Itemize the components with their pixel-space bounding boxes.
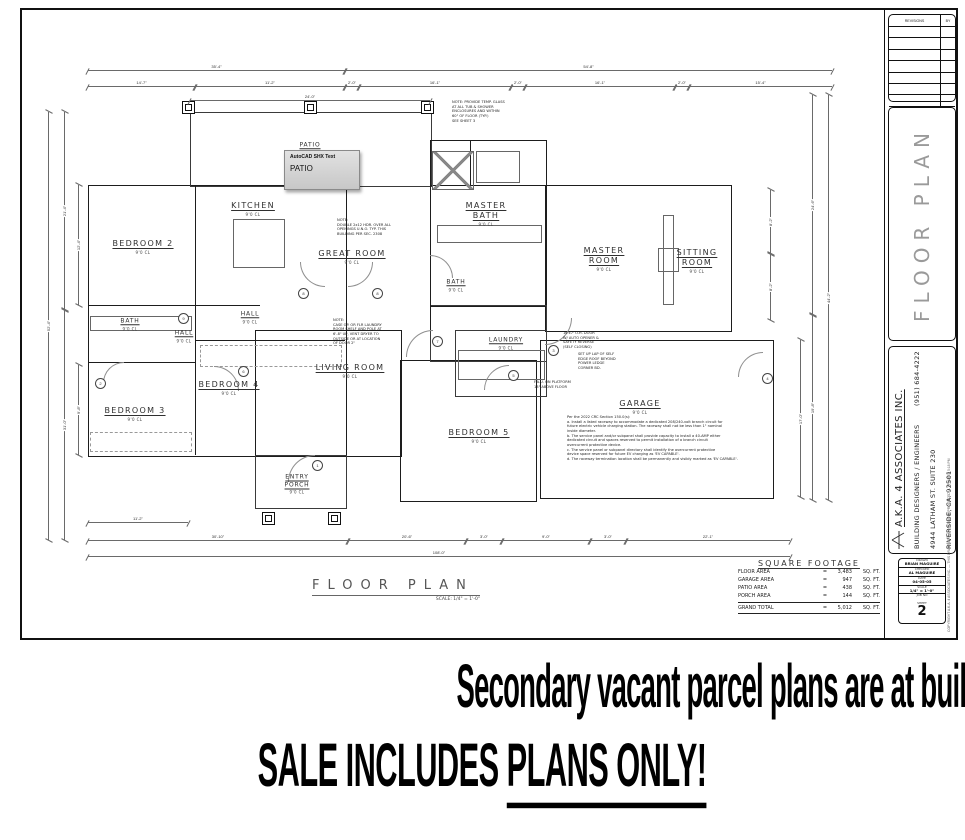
tooltip-text: PATIO bbox=[290, 164, 354, 173]
room-label: SITTING ROOM9'0 CL bbox=[677, 248, 718, 274]
room-label: HALL9'0 CL bbox=[175, 329, 194, 343]
dimension-label: 108'-0" bbox=[432, 551, 446, 555]
door-swing-arc bbox=[348, 262, 373, 287]
dimension-label: 11'-2" bbox=[264, 81, 276, 85]
dimension-label: 22'-1" bbox=[702, 535, 714, 539]
square-footage-row: GARAGE AREA=947SQ. FT. bbox=[738, 576, 880, 584]
dimension: 108'-0" bbox=[88, 556, 790, 557]
room-label: LIVING ROOM9'0 CL bbox=[316, 363, 385, 379]
dimension-label: 8'-2" bbox=[769, 217, 773, 227]
drawing-info-block: DRAWNBRIAN MAGUIRECHECKEDAL MAGUIREDATE0… bbox=[898, 558, 946, 624]
tooltip-title: AutoCAD SHX Text bbox=[290, 154, 354, 160]
dimension: 22'-1" bbox=[626, 540, 790, 541]
square-footage-total: GRAND TOTAL=5,012SQ. FT. bbox=[738, 602, 880, 614]
revision-row bbox=[889, 61, 955, 72]
dimension: 24'-0" bbox=[190, 100, 430, 101]
plan-note: NOTE:CASE OP. OR FLR LAUNDRYROOM SHELF A… bbox=[333, 318, 382, 346]
dimension: 44'-2" bbox=[828, 95, 829, 500]
room-label: HALL9'0 CL bbox=[241, 310, 260, 324]
dimension-label: 24'-6" bbox=[811, 199, 815, 211]
dimension-label: 3'-0" bbox=[479, 535, 489, 539]
revisions-rows bbox=[889, 27, 955, 107]
room-label: BEDROOM 39'0 CL bbox=[104, 406, 165, 422]
dimension-label: 30'-10" bbox=[211, 535, 225, 539]
plan-title: FLOOR PLAN SCALE: 1/4" = 1'-0" bbox=[312, 578, 480, 602]
sheet-number-section: SHEET 2 bbox=[899, 598, 945, 623]
dimension-label: 24'-0" bbox=[304, 95, 316, 99]
wall-line bbox=[195, 185, 196, 305]
caption-line-1: Secondary vacant parcel plans are at bui… bbox=[457, 650, 965, 722]
dimension-label: 16'-1" bbox=[594, 81, 606, 85]
dimension-label: 54'-8" bbox=[582, 65, 594, 69]
dimension-label: 52'-4" bbox=[47, 320, 51, 332]
room-label: ENTRY PORCH9'0 CL bbox=[285, 474, 310, 495]
dimension: 35'-4" bbox=[88, 70, 345, 71]
page: AutoCAD SHX Text PATIO FLOOR PLAN SCALE:… bbox=[0, 0, 965, 840]
plan-note: NOTE: PROVIDE TEMP. GLASSAT ALL TUB & SH… bbox=[452, 100, 505, 123]
autocad-shx-tooltip: AutoCAD SHX Text PATIO bbox=[284, 150, 360, 190]
plan-note: Per the 2022 CRC Section 150.0(s):a. Ins… bbox=[567, 415, 738, 462]
caption-line-2-underlined: PLANS ONLY! bbox=[507, 730, 707, 808]
fixture bbox=[90, 432, 192, 452]
square-footage-row: PATIO AREA=438SQ. FT. bbox=[738, 584, 880, 592]
square-footage-row: FLOOR AREA=3,483SQ. FT. bbox=[738, 568, 880, 576]
dimension-label: 44'-2" bbox=[827, 291, 831, 303]
dimension: 20'-6" bbox=[348, 540, 466, 541]
wall-line bbox=[88, 362, 195, 363]
dimension-label: 19'-8" bbox=[811, 401, 815, 413]
patio-post bbox=[262, 512, 275, 525]
door-tag: 7 bbox=[432, 336, 443, 347]
dimension: 9'-8" bbox=[78, 365, 79, 455]
dimension-label: 9'-8" bbox=[77, 405, 81, 415]
dimension: 52'-4" bbox=[48, 112, 49, 540]
room-label: BATH9'0 CL bbox=[120, 317, 139, 331]
revision-row bbox=[889, 50, 955, 61]
square-footage-rows: FLOOR AREA=3,483SQ. FT.GARAGE AREA=947SQ… bbox=[738, 568, 880, 600]
sheet-title-panel: FLOOR PLAN bbox=[888, 107, 956, 341]
room-label: GARAGE9'0 CL bbox=[619, 399, 660, 415]
dimension: 8'-2" bbox=[770, 254, 771, 320]
dimension: 17'-0" bbox=[800, 340, 801, 497]
dimension-label: 16'-1" bbox=[429, 81, 441, 85]
compass-logo bbox=[891, 531, 905, 549]
patio-post bbox=[304, 101, 317, 114]
door-tag: 9 bbox=[178, 313, 189, 324]
dimension-label: 21'-4" bbox=[63, 205, 67, 217]
room-label: GREAT ROOM9'0 CL bbox=[318, 249, 385, 265]
dimension-label: 9'-0" bbox=[541, 535, 551, 539]
door-tag: 1 bbox=[312, 460, 323, 471]
caption-banner: Secondary vacant parcel plans are at bui… bbox=[0, 650, 965, 794]
dimension: 24'-6" bbox=[812, 95, 813, 315]
revisions-table: REVISIONS BY bbox=[888, 14, 956, 102]
dimension-label: 31'-0" bbox=[63, 419, 67, 431]
revision-row bbox=[889, 27, 955, 38]
fixture bbox=[476, 151, 520, 183]
dimension: 11'-2" bbox=[195, 86, 345, 87]
company-phone: (951) 684-4222 bbox=[913, 351, 921, 406]
dimension-label: 20'-6" bbox=[401, 535, 413, 539]
door-tag: 8 bbox=[372, 288, 383, 299]
dimension-label: 2'-0" bbox=[677, 81, 687, 85]
room-label: LAUNDRY9'0 CL bbox=[489, 336, 523, 350]
dimension-label: 35'-4" bbox=[210, 65, 222, 69]
room-label: BEDROOM 59'0 CL bbox=[448, 428, 509, 444]
dimension-label: 17'-0" bbox=[799, 412, 803, 424]
dimension: 16'-1" bbox=[525, 86, 675, 87]
door-tag: 3 bbox=[548, 345, 559, 356]
dimension-label: 2'-0" bbox=[513, 81, 523, 85]
dimension: 12'-4" bbox=[78, 185, 79, 305]
copyright-microtext: COPYRIGHT A.K.A. 4 ASSOCIATES INC. — THI… bbox=[947, 458, 951, 632]
dimension-label: 3'-0" bbox=[603, 535, 613, 539]
revision-row bbox=[889, 84, 955, 95]
door-tag: 6 bbox=[238, 366, 249, 377]
sheet-number: 2 bbox=[917, 605, 926, 618]
room-label: BEDROOM 49'0 CL bbox=[198, 380, 259, 396]
caption-line-2-prefix: SALE INCLUDES bbox=[258, 730, 507, 799]
company-line2: BUILDING DESIGNERS / ENGINEERS bbox=[913, 425, 921, 549]
dimension: 19'-8" bbox=[812, 315, 813, 500]
dimension-label: 15'-4" bbox=[754, 81, 766, 85]
door-tag: 4 bbox=[762, 373, 773, 384]
plan-note: F.A.U. ON PLATFORM18" ABOVE FLOOR bbox=[534, 380, 571, 389]
square-footage-table: SQUARE FOOTAGE FLOOR AREA=3,483SQ. FT.GA… bbox=[738, 559, 880, 614]
wall-line bbox=[195, 340, 345, 341]
revision-row bbox=[889, 95, 955, 106]
door-tag: 8 bbox=[298, 288, 309, 299]
wall-line bbox=[88, 305, 260, 306]
room-label: PATIO bbox=[299, 141, 320, 149]
fixture bbox=[437, 225, 542, 243]
fixture bbox=[233, 219, 285, 268]
plan-note: NOTE:DOUBLE 2x12 HDR. OVER ALLOPENINGS U… bbox=[337, 218, 391, 237]
dimension: 30'-10" bbox=[88, 540, 348, 541]
room-label: MASTER BATH9'0 CL bbox=[466, 201, 507, 227]
revisions-header: REVISIONS bbox=[889, 19, 940, 23]
door-tag: 5 bbox=[508, 370, 519, 381]
sheet-title-vertical: FLOOR PLAN bbox=[910, 126, 934, 322]
dimension: 9'-0" bbox=[502, 540, 590, 541]
dimension: 8'-2" bbox=[770, 190, 771, 254]
plan-note: SET UP LAP OF SELFEDGE ROOF BEYONDPOWER … bbox=[578, 352, 616, 371]
door-tag: 2 bbox=[95, 378, 106, 389]
dimension: 21'-4" bbox=[64, 112, 65, 310]
dimension: 3'-0" bbox=[466, 540, 502, 541]
door-swing-arc bbox=[406, 330, 433, 357]
by-header: BY bbox=[940, 15, 955, 26]
dimension: 15'-4" bbox=[689, 86, 832, 87]
square-footage-row: PORCH AREA=144SQ. FT. bbox=[738, 592, 880, 600]
dimension: 14'-7" bbox=[88, 86, 195, 87]
room-label: KITCHEN9'0 CL bbox=[231, 201, 275, 217]
fixture bbox=[432, 151, 474, 190]
dimension-label: 11'-2" bbox=[132, 517, 144, 521]
dimension-label: 2'-0" bbox=[347, 81, 357, 85]
company-panel: A.K.A. 4 ASSOCIATES INC. BUILDING DESIGN… bbox=[888, 346, 956, 554]
dimension-label: 8'-2" bbox=[769, 282, 773, 292]
dimension: 11'-2" bbox=[88, 522, 188, 523]
square-footage-title: SQUARE FOOTAGE bbox=[738, 559, 880, 568]
dimension: 31'-0" bbox=[64, 310, 65, 540]
wall-line bbox=[195, 305, 196, 455]
company-name: A.K.A. 4 ASSOCIATES INC. bbox=[894, 389, 905, 527]
dimension: 16'-1" bbox=[359, 86, 511, 87]
wall-line bbox=[430, 305, 431, 330]
dimension-label: 12'-4" bbox=[77, 239, 81, 251]
dimension: 54'-8" bbox=[345, 70, 832, 71]
patio-post bbox=[328, 512, 341, 525]
company-line3: 4944 LATHAM ST. SUITE 230 bbox=[929, 351, 937, 549]
room-label: MASTER ROOM9'0 CL bbox=[584, 246, 625, 272]
plan-title-text: FLOOR PLAN bbox=[312, 578, 480, 596]
plan-scale: SCALE: 1/4" = 1'-0" bbox=[312, 597, 480, 602]
room-label: BATH9'0 CL bbox=[446, 278, 465, 292]
dimension: 3'-0" bbox=[590, 540, 626, 541]
room-label: BEDROOM 29'0 CL bbox=[112, 239, 173, 255]
plan-note: 16'x7' O.H. DOORW/ AUTO OPENER &SAFETY R… bbox=[563, 331, 599, 350]
caption-line-2: SALE INCLUDES PLANS ONLY! bbox=[258, 729, 707, 801]
revision-row bbox=[889, 73, 955, 84]
patio-post bbox=[421, 101, 434, 114]
dimension-label: 14'-7" bbox=[135, 81, 147, 85]
revision-row bbox=[889, 38, 955, 49]
